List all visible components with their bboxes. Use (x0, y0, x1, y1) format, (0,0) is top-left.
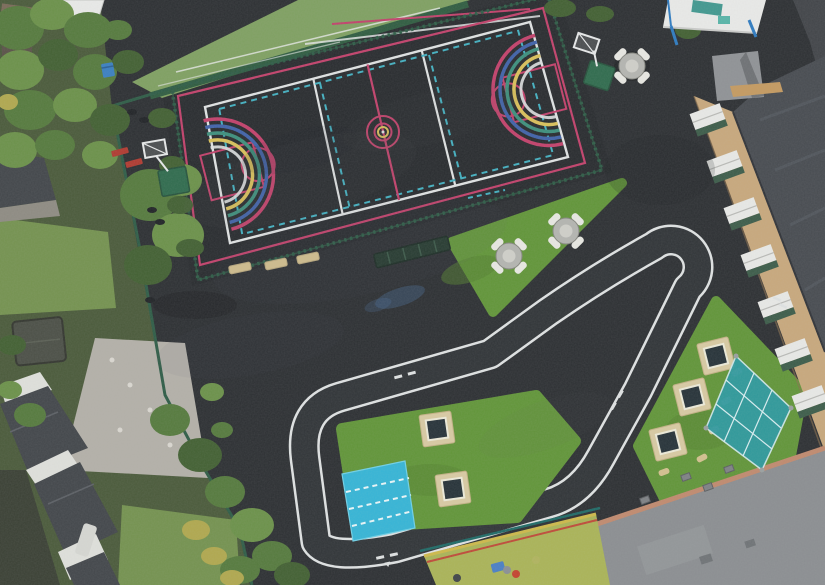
photo-grain (0, 0, 825, 585)
aerial-photo (0, 0, 825, 585)
playground-scene (0, 0, 825, 585)
